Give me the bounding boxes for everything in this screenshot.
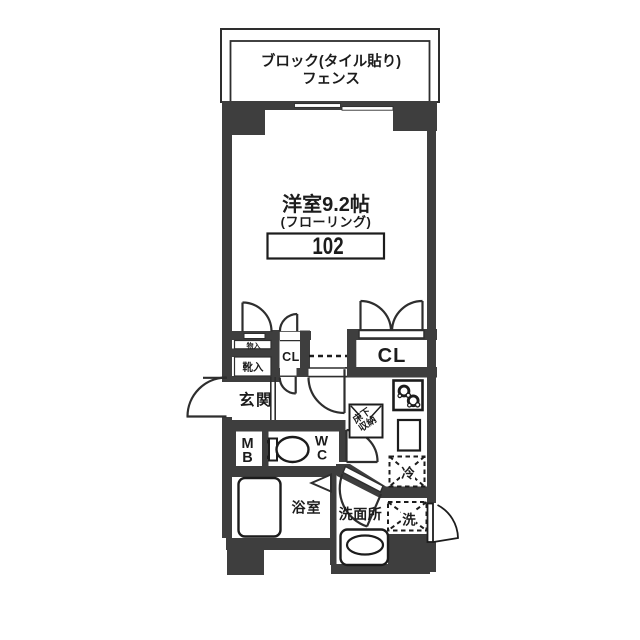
svg-text:102: 102 <box>312 233 343 260</box>
svg-text:フェンス: フェンス <box>302 72 360 88</box>
svg-text:物入: 物入 <box>247 341 261 350</box>
svg-text:C: C <box>317 447 327 463</box>
svg-text:浴室: 浴室 <box>292 500 322 516</box>
svg-text:ブロック(タイル貼り): ブロック(タイル貼り) <box>261 52 401 70</box>
svg-text:冷: 冷 <box>401 465 415 481</box>
svg-text:B: B <box>242 450 252 466</box>
svg-text:洋室9.2帖: 洋室9.2帖 <box>282 192 370 216</box>
svg-text:洗面所: 洗面所 <box>339 506 383 522</box>
svg-text:CL: CL <box>282 350 300 364</box>
svg-text:洗: 洗 <box>402 512 416 528</box>
svg-text:CL: CL <box>378 345 407 367</box>
svg-text:靴入: 靴入 <box>243 361 264 374</box>
svg-text:玄関: 玄関 <box>239 390 273 409</box>
svg-text:(フローリング): (フローリング) <box>281 215 372 230</box>
